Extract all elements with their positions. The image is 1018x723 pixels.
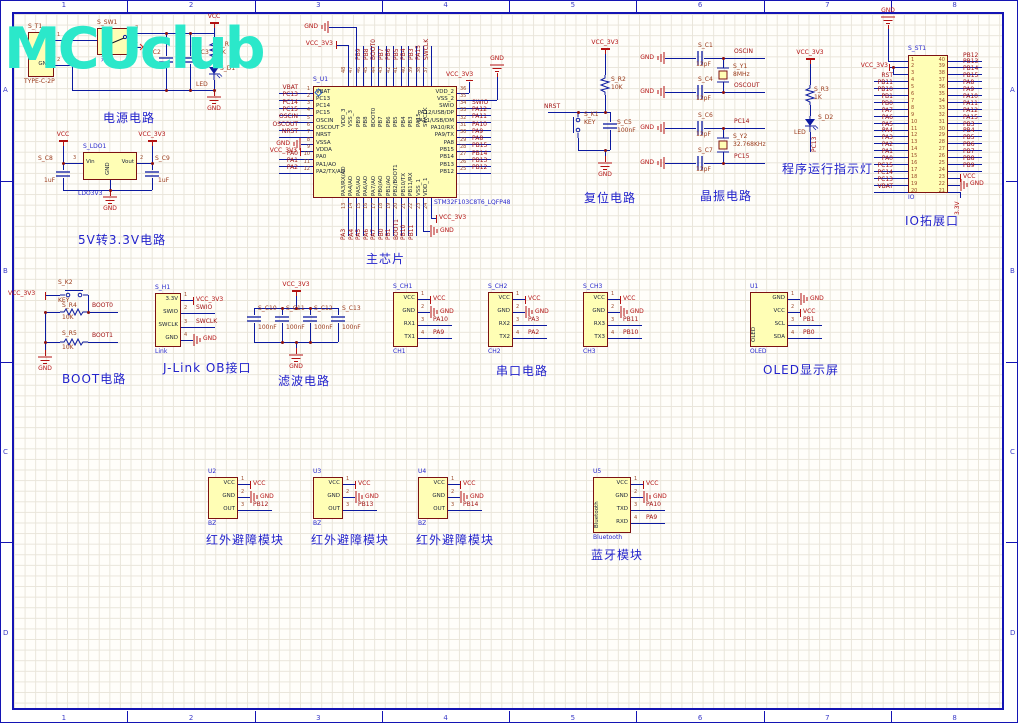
power-tick <box>800 309 801 317</box>
wire <box>960 192 961 198</box>
net-label-PA9: PA9 <box>433 330 444 336</box>
wire <box>631 484 643 485</box>
ch1-pin-number: 3 <box>421 318 424 323</box>
ground-icon <box>207 96 221 105</box>
ir1-pin-name: GND <box>222 494 235 500</box>
zone-divider <box>127 0 128 12</box>
ir2-pin-number: 2 <box>346 490 349 495</box>
mcu-pin-number: 30 <box>460 130 466 135</box>
r4-designator: S_R4 <box>62 303 77 309</box>
mcu-pin-name: PB10/TX <box>402 158 408 196</box>
zone-col-label: 6 <box>698 714 702 722</box>
mcu-pin-name: PB3 <box>409 89 415 127</box>
wire <box>800 325 822 326</box>
crystal-icon[interactable] <box>715 67 731 83</box>
wire <box>88 295 89 312</box>
wire <box>948 61 960 62</box>
wire <box>181 313 193 314</box>
oled-pin-name: SDA <box>774 335 785 341</box>
io-header-pin-number: 27 <box>939 147 945 152</box>
io-header-pin-number: 11 <box>911 127 917 132</box>
wire <box>788 299 800 300</box>
ch3-sublabel: CH3 <box>583 349 596 355</box>
caption-jlink: J-Link OB接口 <box>163 362 252 374</box>
power-port-VCC_3V3: VCC_3V3 <box>796 50 823 56</box>
mcu-pin-number: 32 <box>460 116 466 121</box>
ch1-pin-name: VCC <box>404 296 415 302</box>
mcu-pin-name: PB14 <box>440 155 454 161</box>
zone-divider <box>0 181 12 182</box>
io-header-pin-number: 2 <box>911 64 914 69</box>
mcu-pin-number: 9 <box>307 145 310 150</box>
ground-icon <box>490 64 504 73</box>
bt-pin-name: TXD <box>617 507 628 513</box>
wire <box>355 510 377 511</box>
wire <box>874 192 896 193</box>
wire <box>896 81 908 82</box>
wire <box>343 497 355 498</box>
net-label-PA6: PA6 <box>364 212 370 240</box>
wire <box>608 312 620 313</box>
mcu-pin-name: PA10/RX <box>431 126 454 132</box>
wire <box>71 163 83 164</box>
mcu-pin-number: 22 <box>409 200 414 209</box>
net-label-PB13: PB13 <box>358 502 373 508</box>
ir3-sublabel: BZ <box>418 521 426 527</box>
c6-designator: S_C6 <box>698 113 713 119</box>
wire <box>948 185 960 186</box>
wire <box>460 510 482 511</box>
wire <box>610 112 611 122</box>
junction-dot <box>309 341 312 344</box>
mcu-designator: S_U1 <box>313 77 328 83</box>
wire <box>893 74 896 75</box>
io-header-pin-number: 13 <box>911 140 917 145</box>
wire <box>948 116 960 117</box>
wire <box>416 210 417 236</box>
zone-divider <box>764 0 765 12</box>
wire <box>948 123 960 124</box>
net-label-PC14: PC14 <box>734 119 749 125</box>
net-label-PA8: PA8 <box>472 136 483 142</box>
ir2-designator: U3 <box>313 469 321 475</box>
junction-dot <box>281 341 284 344</box>
mcu-pin-number: 1 <box>307 87 310 92</box>
io-header-pin-number: 29 <box>939 133 945 138</box>
gnd-power-port: GND <box>640 125 654 131</box>
mcu-pin-name: PA5/AO <box>357 158 363 196</box>
power-stem <box>296 290 297 296</box>
gnd-power-port: GND <box>440 228 454 234</box>
mcu-pin-number: 21 <box>402 200 407 209</box>
c12-value: 100nF <box>314 325 333 331</box>
zone-row-label: D <box>1010 629 1015 637</box>
caption-oled: OLED显示屏 <box>763 364 839 376</box>
gnd-power-port: GND <box>365 494 379 500</box>
net-label-PA5: PA5 <box>356 212 362 240</box>
io-header-designator: S_ST1 <box>908 46 926 52</box>
mcu-pin-number: 33 <box>460 108 466 113</box>
wire <box>418 299 430 300</box>
ir2-pin-name: OUT <box>328 507 340 513</box>
ch3-pin-number: 3 <box>611 318 614 323</box>
net-label-SWIO: SWIO <box>196 305 212 311</box>
net-label-PB1: PB1 <box>386 212 392 240</box>
net-label-PB8: PB8 <box>364 26 370 60</box>
power-label-VCC_3V3: VCC_3V3 <box>446 72 473 78</box>
oled-designator: U1 <box>750 284 758 290</box>
wire <box>896 143 908 144</box>
wire <box>608 299 620 300</box>
io-header-sublabel: IO <box>908 195 915 201</box>
wire <box>896 192 908 193</box>
wire <box>665 163 696 164</box>
y2-value: 32.768KHz <box>733 142 766 148</box>
net-label-PB4: PB4 <box>401 26 407 60</box>
wire <box>45 342 60 343</box>
net-label-PA11: PA11 <box>472 114 487 120</box>
wire <box>88 312 118 313</box>
wire <box>631 523 643 524</box>
junction-dot <box>281 307 284 310</box>
io-header-pin-number: 24 <box>939 168 945 173</box>
wire <box>343 484 355 485</box>
mcu-pin-number: 28 <box>460 145 466 150</box>
capacitor-icon[interactable] <box>331 315 345 323</box>
wire <box>896 74 908 75</box>
zone-row-label: C <box>1010 448 1015 456</box>
mcu-pin-number: 26 <box>460 160 466 165</box>
crystal-icon[interactable] <box>715 137 731 153</box>
mcu-pin-name: SWIO <box>439 104 454 110</box>
wire <box>643 510 665 511</box>
ch1-pin-number: 4 <box>421 331 424 336</box>
d2-designator: S_D2 <box>818 115 833 121</box>
gnd-power-port: GND <box>470 494 484 500</box>
ground-icon <box>38 356 52 365</box>
ch1-pin-name: TX1 <box>404 335 415 341</box>
junction-dot <box>87 311 90 314</box>
net-label-PA10: PA10 <box>646 502 661 508</box>
mcu-pin-number: 10 <box>304 152 310 157</box>
net-label-PB7: PB7 <box>379 26 385 60</box>
ir1-pin-number: 3 <box>241 503 244 508</box>
power-tick <box>45 292 46 300</box>
wire <box>371 74 372 86</box>
resistor-icon[interactable] <box>600 75 610 95</box>
io-header-pin-number: 1 <box>911 58 914 63</box>
wire <box>254 323 255 342</box>
ch3-pin-name: TX3 <box>594 335 605 341</box>
net-label-PA7: PA7 <box>371 212 377 240</box>
wire <box>896 150 908 151</box>
gnd-power-port: GND <box>630 309 644 315</box>
mcu-pin-name: SWCLK <box>424 89 430 127</box>
wire <box>418 312 430 313</box>
gnd-power-port: GND <box>881 8 895 14</box>
ir3-pin-name: VCC <box>434 481 445 487</box>
key-icon[interactable] <box>572 112 584 138</box>
zone-col-label: 3 <box>316 1 320 9</box>
ch3-pin-name: RX3 <box>594 322 605 328</box>
wire <box>254 308 255 315</box>
net-label-PC15: PC15 <box>283 107 298 113</box>
power-stem <box>152 140 153 146</box>
mcu-pin-number: 5 <box>307 116 310 121</box>
ldo-center-label: GND <box>106 157 112 175</box>
bt-pin-number: 2 <box>634 490 637 495</box>
io-header-pin-number: 4 <box>911 78 914 83</box>
wire <box>238 510 250 511</box>
net-label-VBAT: VBAT <box>877 184 893 190</box>
power-tick <box>466 80 473 81</box>
ldo-pin-number: 3 <box>73 156 76 161</box>
c9-designator: S_C9 <box>155 156 170 162</box>
net-label-PB15: PB15 <box>472 143 487 149</box>
net-label-PB0: PB0 <box>379 212 385 240</box>
wire <box>430 325 452 326</box>
net-label-NRST: NRST <box>282 129 298 135</box>
net-label-PA2: PA2 <box>287 165 298 171</box>
wire <box>513 325 525 326</box>
net-label-PB11: PB11 <box>623 317 638 323</box>
mcu-pin-number: 7 <box>307 130 310 135</box>
r5-designator: S_R5 <box>62 331 77 337</box>
zone-row-label: C <box>3 448 8 456</box>
wire <box>810 105 811 116</box>
oled-pin-number: 3 <box>791 318 794 323</box>
capacitor-icon[interactable] <box>603 122 617 130</box>
io-header-pin-number: 6 <box>911 92 914 97</box>
wire <box>665 58 696 59</box>
r2-designator: S_R2 <box>611 77 626 83</box>
junction-dot <box>604 111 607 114</box>
mcu-pin-number: 6 <box>307 123 310 128</box>
wire <box>329 27 356 28</box>
wire <box>401 74 402 86</box>
wire <box>337 45 348 46</box>
wire <box>418 325 430 326</box>
gnd-power-port: GND <box>103 206 117 212</box>
caption-mcu: 主芯片 <box>366 253 405 265</box>
wire <box>620 325 642 326</box>
power-tick <box>300 148 301 156</box>
ir3-pin-number: 1 <box>451 477 454 482</box>
wire <box>896 61 908 62</box>
ground-icon <box>320 21 329 33</box>
ch2-pin-number: 4 <box>516 331 519 336</box>
mcu-pin-number: 16 <box>364 200 369 209</box>
gnd-power-port: GND <box>653 494 667 500</box>
wire <box>788 312 800 313</box>
ir1-sublabel: BZ <box>208 521 216 527</box>
net-label-PB10: PB10 <box>623 330 638 336</box>
io-header-pin-number: 34 <box>939 99 945 104</box>
mcu-pin-name: PB8 <box>364 89 370 127</box>
wire <box>896 164 908 165</box>
power-tick <box>525 296 526 304</box>
junction-dot <box>109 189 112 192</box>
zone-divider <box>0 362 12 363</box>
io-header-pin-number: 21 <box>939 189 945 194</box>
net-label-PB5: PB5 <box>394 26 400 60</box>
net-label-PA12: PA12 <box>963 108 978 114</box>
mcu-pin-name: PB2/BOOT1 <box>394 158 400 196</box>
wire <box>181 340 193 341</box>
wire <box>448 510 460 511</box>
zone-row-label: D <box>3 629 8 637</box>
ir2-sublabel: BZ <box>313 521 321 527</box>
net-label-PA15: PA15 <box>416 26 422 60</box>
wire <box>948 102 960 103</box>
wire <box>888 61 896 62</box>
ground-icon <box>800 293 809 305</box>
junction-dot <box>62 162 65 165</box>
ground-icon <box>656 157 665 169</box>
wire <box>72 90 214 91</box>
wire <box>45 312 60 313</box>
wire <box>423 74 424 86</box>
mcu-pin-name: PB12 <box>440 170 454 176</box>
wire <box>448 497 460 498</box>
wire <box>282 323 283 342</box>
zone-row-label: A <box>3 86 8 94</box>
mcu-pin-name: PA4/AO <box>349 158 355 196</box>
zone-col-label: 4 <box>443 714 447 722</box>
zone-col-label: 8 <box>952 714 956 722</box>
wire <box>430 338 452 339</box>
capacitor-icon[interactable] <box>145 170 159 178</box>
ch1-pin-name: RX1 <box>404 322 415 328</box>
c4-value: 12pF <box>696 96 711 102</box>
bt-pin-number: 3 <box>634 503 637 508</box>
mcu-pin-name: VSS_2 <box>437 97 454 103</box>
mcu-pin-number: 11 <box>304 160 310 165</box>
ch2-pin-name: GND <box>497 309 510 315</box>
wire <box>513 312 525 313</box>
capacitor-icon[interactable] <box>275 315 289 323</box>
mcu-pin-number: 39 <box>409 64 414 73</box>
wire <box>469 173 491 174</box>
mcu-pin-name: OSCOUT <box>316 126 339 132</box>
r2-value: 10K <box>611 85 623 91</box>
wire <box>423 198 424 231</box>
capacitor-icon[interactable] <box>247 315 261 323</box>
caption-io: IO拓展口 <box>905 215 959 227</box>
wire <box>356 74 357 86</box>
wire <box>497 77 498 100</box>
power-label-VCC: VCC <box>358 481 370 487</box>
net-label-PB12: PB12 <box>253 502 268 508</box>
capacitor-icon[interactable] <box>303 315 317 323</box>
gnd-power-port: GND <box>276 141 290 147</box>
mcu-pin-name: PA1/AO <box>316 163 336 169</box>
junction-dot <box>722 57 725 60</box>
mcu-pin-number: 8 <box>307 138 310 143</box>
wire <box>431 46 432 74</box>
wire <box>63 178 64 190</box>
caption-power: 电源电路 <box>103 112 155 124</box>
zone-col-label: 4 <box>443 1 447 9</box>
mcu-pin-number: 41 <box>394 64 399 73</box>
io-header-pin-number: 18 <box>911 175 917 180</box>
r3-value: 1K <box>814 95 822 101</box>
ground-icon <box>103 196 117 205</box>
mcu-pin-name: PB13 <box>440 163 454 169</box>
oled-sublabel: OLED <box>750 349 766 355</box>
mcu-pin-name: BOOT0 <box>372 89 378 127</box>
wire <box>348 74 349 86</box>
wire <box>378 74 379 86</box>
io-header-pin-number: 20 <box>911 189 917 194</box>
h1-designator: S_H1 <box>155 285 170 291</box>
gnd-power-port: GND <box>970 181 984 187</box>
wire <box>431 198 432 218</box>
net-label-PA12: PA12 <box>472 107 487 113</box>
net-label-PC15: PC15 <box>734 154 749 160</box>
mcu-pin-number: 4 <box>307 108 310 113</box>
ldo-pin-number: 2 <box>140 156 143 161</box>
caption-ir3: 红外避障模块 <box>416 534 494 546</box>
wire <box>137 163 149 164</box>
wire <box>948 88 960 89</box>
component-body-mcu[interactable] <box>313 86 457 198</box>
wire <box>643 523 665 524</box>
junction-dot <box>295 307 298 310</box>
frame-line <box>0 0 1018 1</box>
net-label-PB9: PB9 <box>963 163 975 169</box>
caption-reset: 复位电路 <box>584 192 636 204</box>
oled-pin-number: 1 <box>791 292 794 297</box>
zone-divider <box>636 0 637 12</box>
capacitor-icon[interactable] <box>56 170 70 178</box>
bt-vertical-label: Bluetooth <box>595 482 601 528</box>
net-label-OSCIN: OSCIN <box>279 114 298 120</box>
ch2-pin-name: VCC <box>499 296 510 302</box>
ir1-designator: U2 <box>208 469 216 475</box>
mcu-pin-number: 40 <box>402 64 407 73</box>
mcu-pin-number: 45 <box>364 64 369 73</box>
ch2-pin-number: 2 <box>516 305 519 310</box>
wire <box>356 27 357 74</box>
ch1-pin-number: 2 <box>421 305 424 310</box>
wire <box>608 338 620 339</box>
power-port-VCC_3V3: VCC_3V3 <box>282 282 309 288</box>
io-header-pin-number: 38 <box>939 71 945 76</box>
wire <box>238 484 250 485</box>
wire <box>193 313 215 314</box>
mcu-pin-name: PB11/RX <box>409 158 415 196</box>
y2-designator: S_Y2 <box>733 134 747 140</box>
wire <box>238 497 250 498</box>
c13-value: 100nF <box>342 325 361 331</box>
io-header-pin-number: 15 <box>911 154 917 159</box>
wire <box>896 185 908 186</box>
h1-pin-name: SWIO <box>163 310 178 316</box>
net-label-PA9: PA9 <box>472 129 483 135</box>
ch2-pin-name: RX2 <box>499 322 510 328</box>
bt-pin-number: 4 <box>634 516 637 521</box>
zone-divider <box>255 0 256 12</box>
caption-bt: 蓝牙模块 <box>591 549 643 561</box>
io-header-pin-number: 40 <box>939 58 945 63</box>
mcu-pin-name: PC15 <box>316 111 330 117</box>
junction-dot <box>189 89 192 92</box>
mcu-pin-number: 17 <box>372 200 377 209</box>
wire <box>896 102 908 103</box>
net-label-PB13: PB13 <box>472 158 487 164</box>
ground-icon <box>960 179 969 191</box>
